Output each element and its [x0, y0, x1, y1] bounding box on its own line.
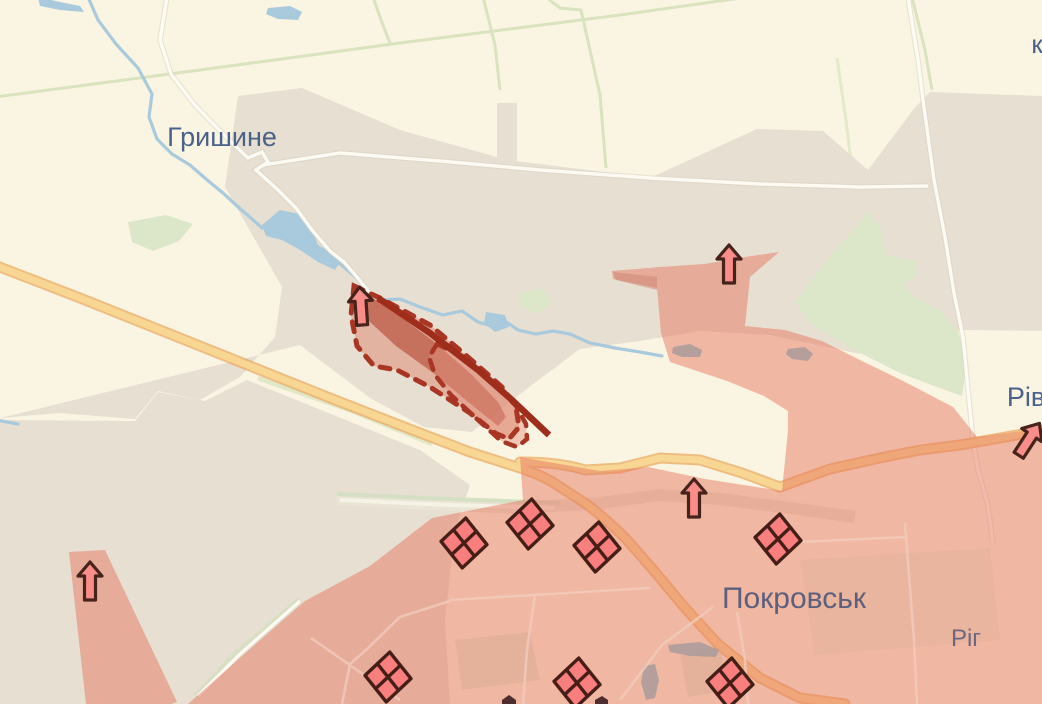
attack-arrow-icon [348, 286, 375, 326]
unit-marker-diamond-icon [572, 520, 621, 573]
place-label-pokrovsk: Покровськ [722, 582, 867, 615]
unit-marker-diamond-icon [552, 656, 601, 704]
map-canvas[interactable]: ГришинеПокровськРівРігк [0, 0, 1042, 704]
unit-marker-diamond-icon [363, 650, 412, 703]
attack-arrow-icon [1009, 417, 1042, 462]
attack-arrow-icon [717, 245, 741, 283]
place-label-riv: Рів [1007, 382, 1042, 412]
attack-arrows-layer [78, 245, 1042, 600]
overlay-svg: ГришинеПокровськРівРігк [0, 0, 1042, 704]
unit-marker-diamond-icon [705, 656, 754, 704]
place-label-rih: Ріг [951, 625, 981, 652]
unit-marker-diamond-icon [505, 497, 554, 550]
unit-marker-diamond-icon [753, 512, 802, 565]
attack-arrow-icon [78, 562, 102, 600]
attack-arrow-icon [682, 479, 706, 517]
unit-marker-diamond-icon [439, 516, 488, 569]
place-label-hryshyne: Гришине [167, 122, 277, 152]
place-label-k: к [1031, 29, 1042, 59]
